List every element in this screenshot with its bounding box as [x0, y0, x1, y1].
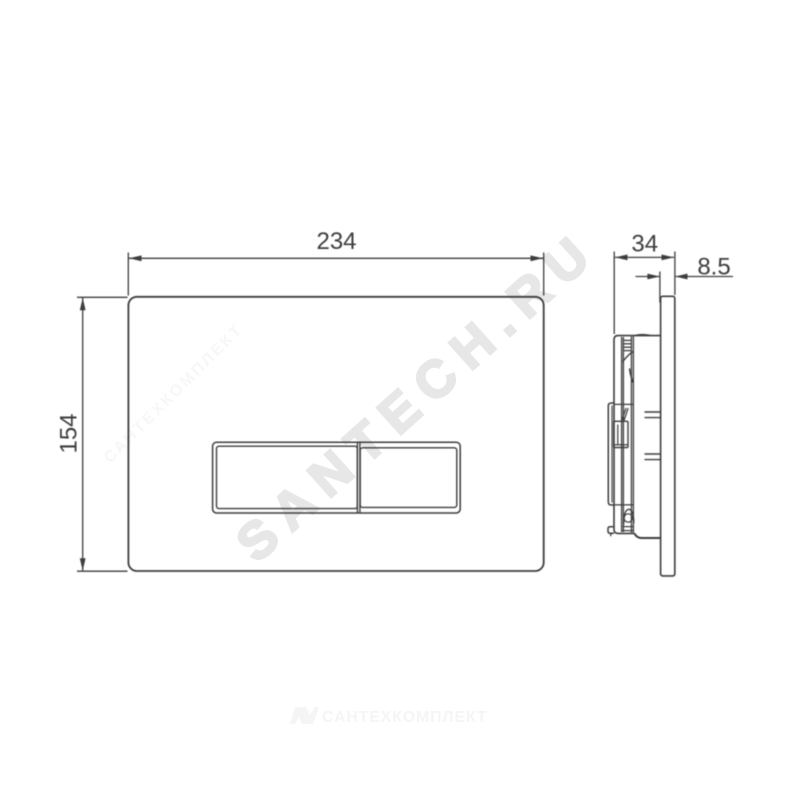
- svg-text:САНТЕХКОМПЛЕКТ: САНТЕХКОМПЛЕКТ: [101, 321, 247, 467]
- svg-text:SANTECH.RU: SANTECH.RU: [226, 220, 610, 574]
- svg-text:САНТЕХКОМПЛЕКТ: САНТЕХКОМПЛЕКТ: [322, 709, 487, 726]
- svg-text:234: 234: [316, 228, 356, 255]
- svg-text:8.5: 8.5: [697, 254, 730, 281]
- svg-text:34: 34: [631, 230, 658, 257]
- svg-text:154: 154: [56, 413, 83, 453]
